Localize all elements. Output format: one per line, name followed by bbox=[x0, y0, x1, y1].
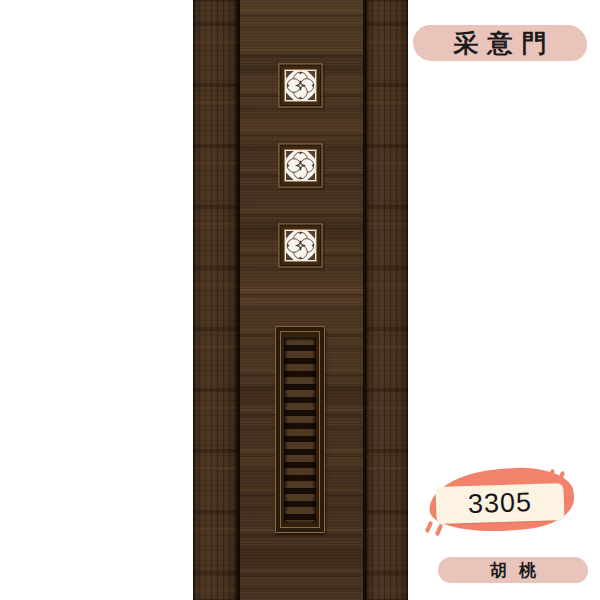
door-left-stile bbox=[193, 0, 237, 600]
flower-glass-window-icon bbox=[278, 63, 323, 108]
louver-slats bbox=[284, 338, 316, 523]
quote-mark-icon bbox=[425, 521, 434, 534]
quote-mark-icon bbox=[435, 524, 444, 537]
product-code-badge: 3305 bbox=[435, 483, 564, 524]
wood-type-badge: 胡桃 bbox=[438, 557, 588, 583]
brand-label: 采意門 bbox=[445, 31, 556, 56]
flower-glass-window-icon bbox=[278, 223, 323, 268]
wood-type-label: 胡桃 bbox=[478, 562, 548, 579]
brand-badge: 采意門 bbox=[413, 25, 587, 61]
door-right-stile bbox=[366, 0, 408, 600]
flower-glass-window-icon bbox=[278, 143, 323, 188]
louver-vent-panel bbox=[275, 326, 325, 533]
product-code-label: 3305 bbox=[468, 489, 533, 518]
door-groove-left bbox=[237, 0, 240, 600]
door-groove-right bbox=[363, 0, 366, 600]
catalog-page: { "page": { "background_color": "#ffffff… bbox=[0, 0, 600, 600]
door-image bbox=[193, 0, 408, 600]
